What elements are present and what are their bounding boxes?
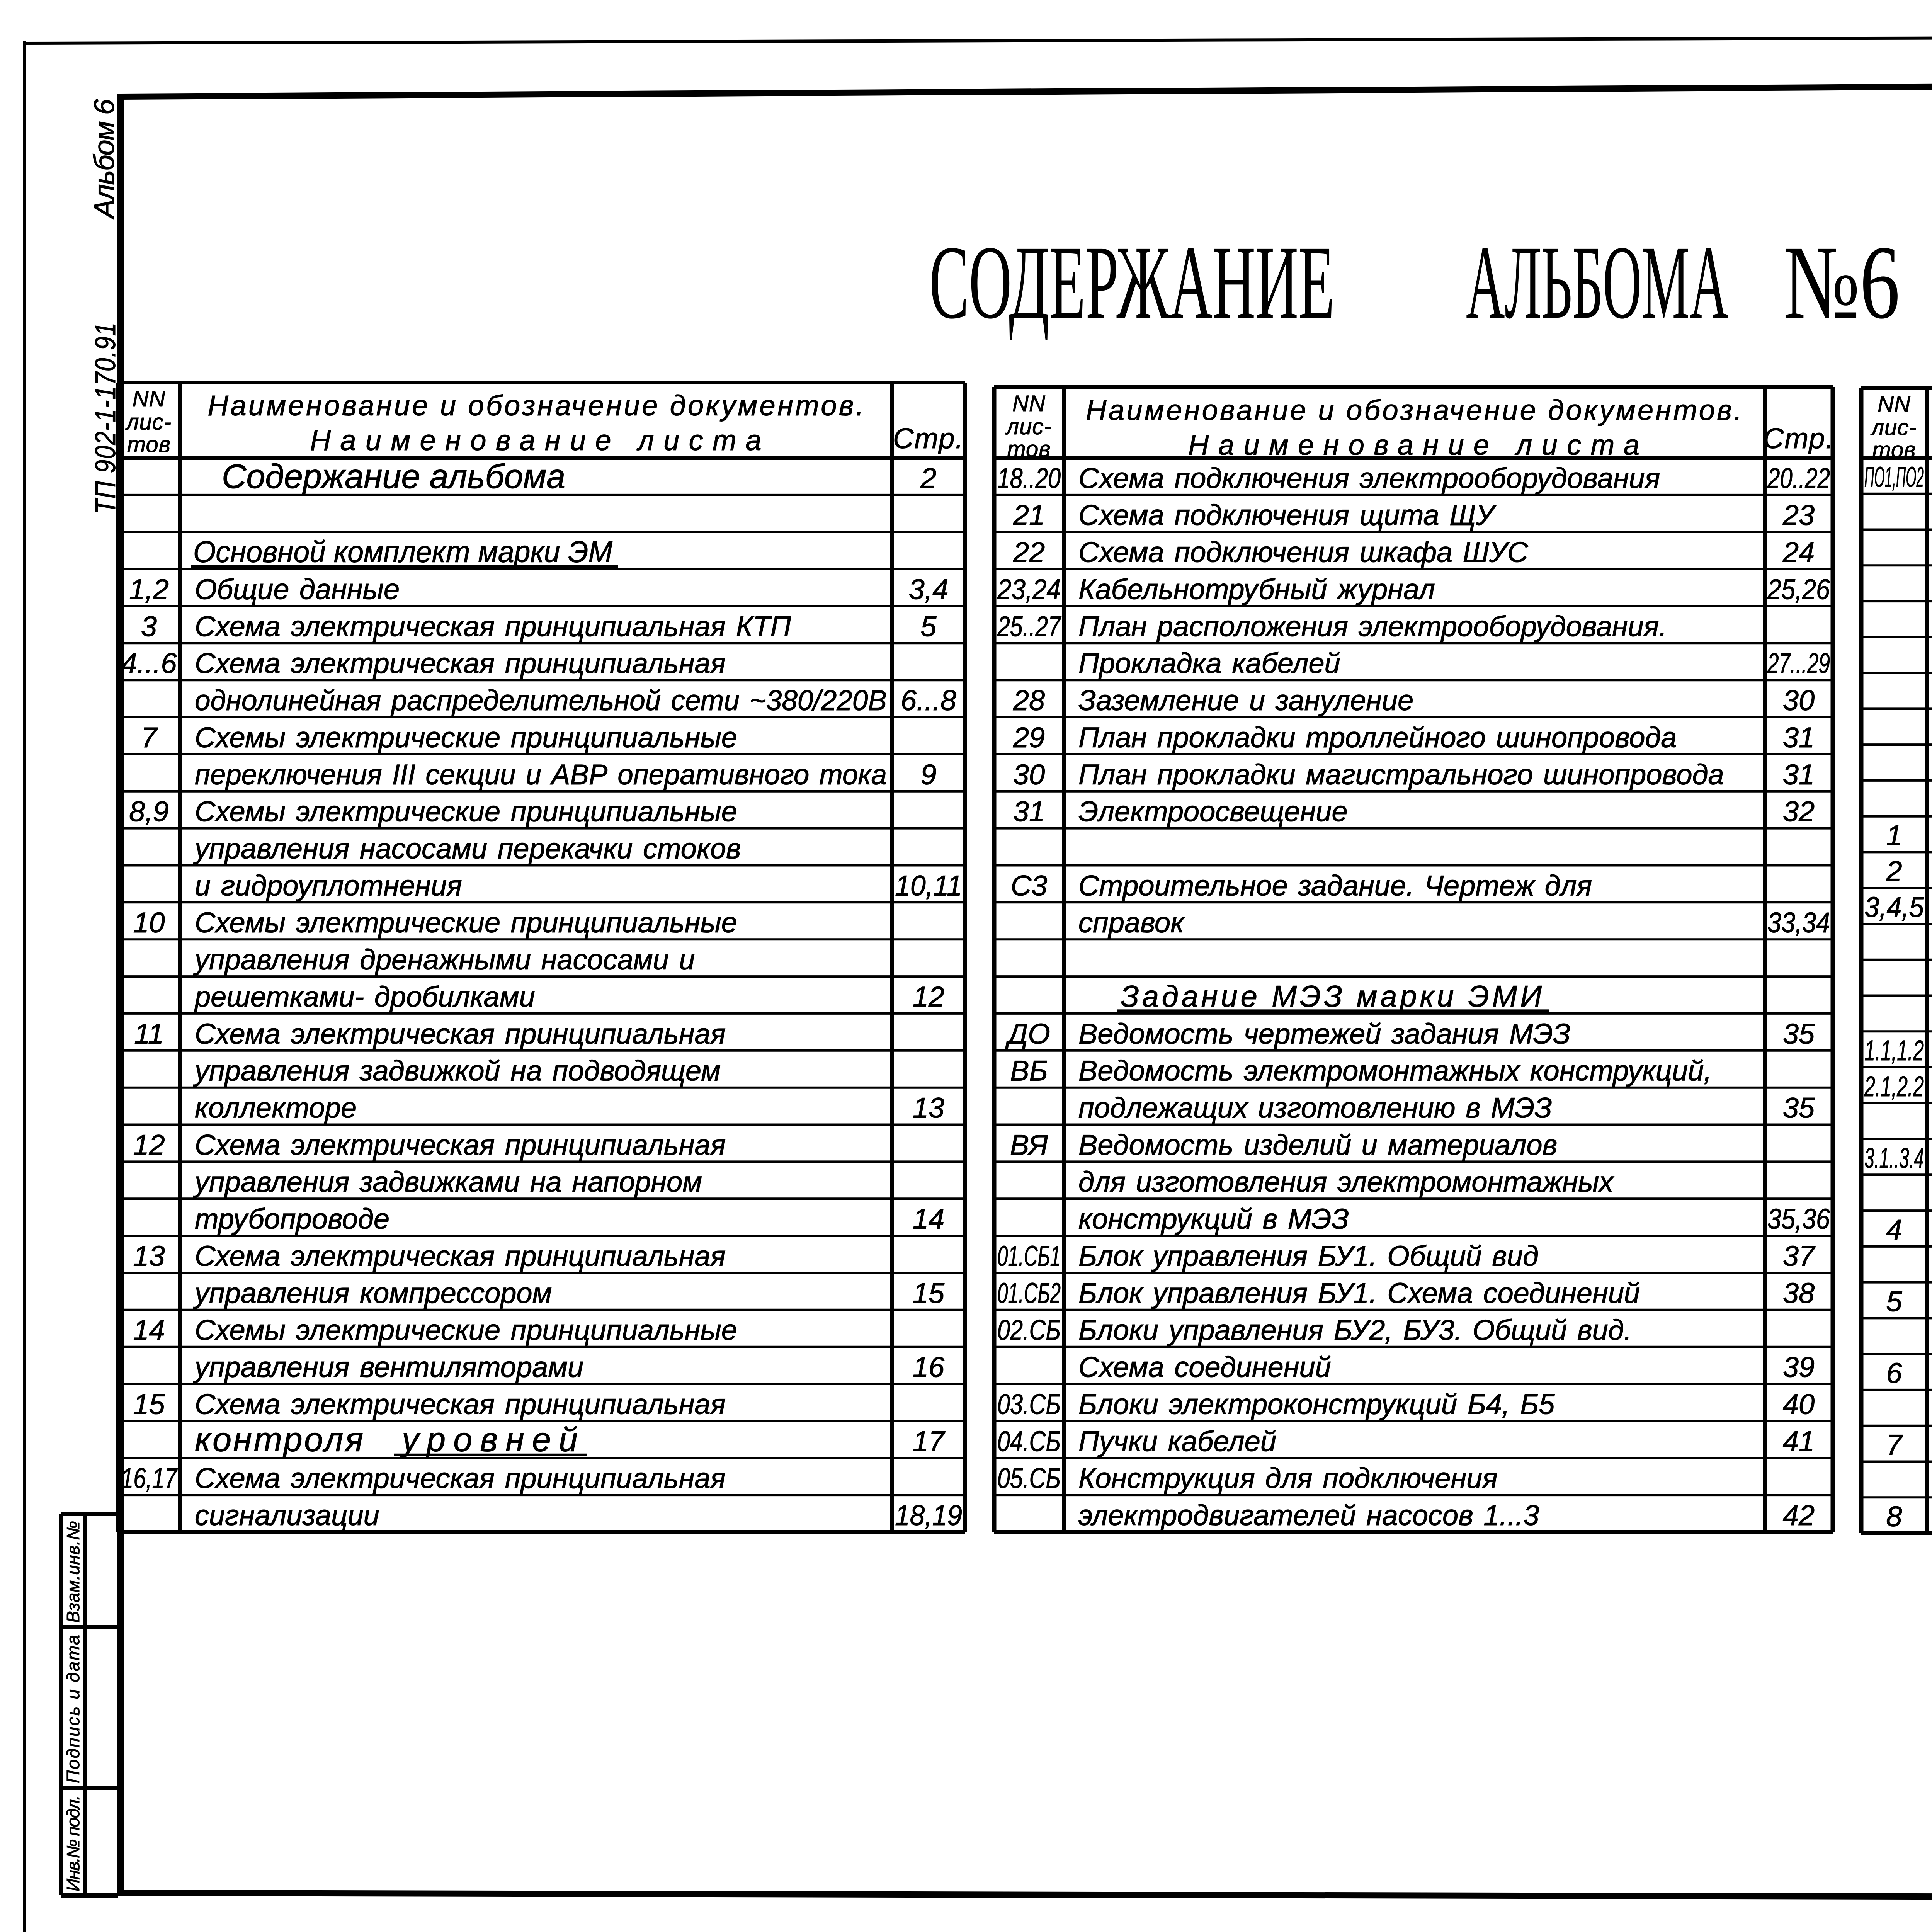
svg-text:Конструкция для подключения: Конструкция для подключения	[1078, 1462, 1498, 1494]
svg-text:Схема электрическая принципи: Схема электрическая принципиальная КТП	[195, 610, 791, 642]
svg-text:Схема электрическая принципи: Схема электрическая принципиальная	[195, 1018, 726, 1050]
svg-text:28: 28	[1013, 684, 1045, 716]
svg-text:Схема электрическая принципи: Схема электрическая принципиальная	[195, 1129, 726, 1161]
svg-text:3: 3	[141, 610, 157, 642]
svg-text:Взам.инв.№: Взам.инв.№	[63, 1520, 83, 1623]
svg-text:17: 17	[913, 1425, 946, 1457]
svg-text:тов: тов	[1872, 437, 1916, 463]
svg-text:Блоки электроконструкций Б4,: Блоки электроконструкций Б4, Б5	[1078, 1388, 1555, 1420]
svg-text:лис-: лис-	[1870, 415, 1917, 440]
svg-text:управления задвижками на на: управления задвижками на напорном	[193, 1166, 702, 1198]
svg-text:ВБ: ВБ	[1010, 1055, 1048, 1087]
svg-text:30: 30	[1013, 759, 1045, 791]
svg-text:25..27: 25..27	[997, 610, 1061, 642]
svg-text:8: 8	[1886, 1500, 1902, 1532]
svg-text:Инв.№ подл.: Инв.№ подл.	[63, 1795, 83, 1891]
svg-text:15: 15	[913, 1277, 945, 1309]
svg-text:21: 21	[1013, 499, 1045, 531]
svg-text:18,19: 18,19	[895, 1499, 962, 1531]
svg-text:ПО1,ПО2: ПО1,ПО2	[1864, 461, 1924, 493]
svg-text:30: 30	[1783, 684, 1815, 716]
svg-text:электродвигателей насосов 1: электродвигателей насосов 1...3	[1078, 1499, 1539, 1531]
svg-text:Схемы электрические принципи: Схемы электрические принципиальные	[195, 796, 737, 828]
svg-text:С3: С3	[1011, 869, 1048, 901]
svg-text:05.СБ: 05.СБ	[997, 1462, 1061, 1494]
svg-text:Ведомость изделий и матер: Ведомость изделий и материалов	[1078, 1129, 1557, 1161]
svg-text:Схемы электрические принципиа: Схемы электрические принципиальные	[195, 1314, 737, 1346]
svg-text:План прокладки магистральног: План прокладки магистрального шинопровод…	[1078, 759, 1724, 791]
svg-text:8,9: 8,9	[129, 796, 169, 828]
svg-text:управления задвижкой на под: управления задвижкой на подводящем	[193, 1055, 721, 1087]
svg-text:NN: NN	[1012, 391, 1046, 416]
svg-text:тов: тов	[1007, 437, 1051, 462]
svg-text:10,11: 10,11	[895, 869, 962, 901]
svg-text:Ведомость электромонтажных к: Ведомость электромонтажных конструкций,	[1078, 1055, 1712, 1087]
svg-text:35: 35	[1783, 1018, 1815, 1050]
svg-text:трубопроводе: трубопроводе	[195, 1203, 389, 1235]
svg-text:35,36: 35,36	[1767, 1203, 1830, 1235]
svg-text:03.СБ: 03.СБ	[997, 1388, 1061, 1420]
svg-text:39: 39	[1783, 1351, 1815, 1383]
svg-text:Строительное задание. Чертеж: Строительное задание. Чертеж для	[1078, 869, 1592, 901]
svg-text:Содержание альбома: Содержание альбома	[222, 457, 565, 495]
svg-text:2: 2	[920, 462, 936, 494]
svg-text:3,4: 3,4	[909, 573, 949, 605]
svg-text:справок: справок	[1078, 906, 1185, 939]
svg-text:для изготовления электромо: для изготовления электромонтажных	[1078, 1166, 1614, 1198]
svg-text:3.1..3.4: 3.1..3.4	[1864, 1142, 1924, 1174]
svg-text:Подпись и дата: Подпись и дата	[63, 1634, 83, 1783]
svg-text:управления компрессором: управления компрессором	[193, 1277, 552, 1309]
svg-text:32: 32	[1783, 796, 1815, 828]
svg-text:Основной комплект марки ЭМ: Основной комплект марки ЭМ	[193, 535, 612, 569]
svg-text:ВЯ: ВЯ	[1010, 1129, 1048, 1161]
svg-text:13: 13	[133, 1240, 165, 1272]
svg-text:Задание МЭЗ марки ЭМИ: Задание МЭЗ марки ЭМИ	[1121, 979, 1542, 1013]
svg-text:NN: NN	[1878, 392, 1911, 417]
svg-text:1,2: 1,2	[129, 573, 169, 605]
svg-text:13: 13	[913, 1092, 944, 1124]
svg-text:подлежащих изготовлению в: подлежащих изготовлению в МЭЗ	[1078, 1092, 1552, 1124]
svg-text:1.1,1.2: 1.1,1.2	[1864, 1034, 1924, 1066]
svg-text:Схемы электрические принципи: Схемы электрические принципиальные	[195, 721, 737, 753]
svg-text:4: 4	[1886, 1214, 1902, 1246]
svg-text:решетками- дробилками: решетками- дробилками	[194, 981, 535, 1013]
svg-text:NN: NN	[133, 386, 166, 412]
svg-text:переключения III секции и АВР: переключения III секции и АВР оперативно…	[195, 759, 887, 791]
svg-text:Схема подключения щита ЩУ: Схема подключения щита ЩУ	[1078, 499, 1497, 531]
svg-text:лис-: лис-	[1005, 414, 1051, 439]
svg-text:16: 16	[913, 1351, 945, 1383]
svg-text:ДО: ДО	[1005, 1018, 1050, 1050]
svg-text:Электроосвещение: Электроосвещение	[1078, 796, 1348, 828]
svg-text:4...6: 4...6	[121, 647, 177, 679]
svg-text:40: 40	[1783, 1388, 1815, 1420]
svg-text:5: 5	[920, 610, 937, 642]
svg-text:Стр.: Стр.	[1763, 422, 1834, 454]
svg-text:12: 12	[913, 981, 944, 1013]
svg-text:Альбом 6: Альбом 6	[88, 98, 120, 220]
svg-text:Схема электрическая принципи: Схема электрическая принципиальная	[195, 1462, 726, 1494]
svg-text:01.СБ2: 01.СБ2	[997, 1277, 1061, 1309]
svg-text:План расположения электрообо: План расположения электрооборудования.	[1078, 610, 1667, 642]
svg-text:31: 31	[1013, 796, 1045, 828]
svg-text:23,24: 23,24	[997, 573, 1061, 605]
svg-text:Прокладка кабелей: Прокладка кабелей	[1078, 647, 1340, 679]
svg-text:23: 23	[1782, 499, 1815, 531]
svg-text:6...8: 6...8	[901, 684, 956, 716]
svg-text:управления вентиляторами: управления вентиляторами	[193, 1351, 583, 1383]
svg-text:управления дренажными насосам: управления дренажными насосами и	[193, 944, 695, 976]
svg-text:10: 10	[133, 906, 165, 939]
svg-text:коллекторе: коллекторе	[195, 1092, 357, 1124]
svg-text:14: 14	[133, 1314, 165, 1346]
svg-text:7: 7	[141, 721, 158, 753]
svg-text:№6: №6	[1783, 224, 1900, 340]
svg-text:35: 35	[1783, 1092, 1815, 1124]
svg-text:Стр.: Стр.	[893, 422, 964, 454]
svg-text:1: 1	[1886, 819, 1902, 851]
svg-text:22: 22	[1013, 536, 1045, 568]
svg-text:Заземление и зануление: Заземление и зануление	[1078, 684, 1413, 716]
svg-text:9: 9	[920, 759, 936, 791]
svg-text:37: 37	[1783, 1240, 1816, 1272]
svg-text:14: 14	[913, 1203, 944, 1235]
svg-text:02.СБ: 02.СБ	[997, 1314, 1061, 1346]
svg-text:38: 38	[1783, 1277, 1815, 1309]
svg-text:Схема подключения шкафа: Схема подключения шкафа ШУС	[1078, 536, 1528, 568]
svg-text:тов: тов	[127, 432, 171, 457]
svg-text:11: 11	[134, 1018, 164, 1050]
svg-text:6: 6	[1886, 1357, 1902, 1389]
svg-text:27...29: 27...29	[1767, 647, 1830, 679]
svg-text:04.СБ: 04.СБ	[997, 1425, 1061, 1457]
svg-text:01.СБ1: 01.СБ1	[997, 1240, 1061, 1272]
svg-text:и гидроуплотнения: и гидроуплотнения	[195, 869, 462, 901]
svg-text:Ведомость чертежей задания: Ведомость чертежей задания МЭЗ	[1078, 1018, 1570, 1050]
svg-text:15: 15	[133, 1388, 165, 1420]
svg-text:СОДЕРЖАНИЕ: СОДЕРЖАНИЕ	[929, 224, 1335, 341]
svg-text:Блок управления БУ1. Общий: Блок управления БУ1. Общий вид	[1078, 1240, 1539, 1272]
svg-text:31: 31	[1783, 721, 1815, 753]
svg-text:Схема электрическая принципи: Схема электрическая принципиальная	[195, 1240, 726, 1272]
svg-text:24: 24	[1782, 536, 1815, 568]
svg-text:лис-: лис-	[125, 410, 172, 435]
svg-text:18..20: 18..20	[997, 462, 1061, 494]
svg-text:12: 12	[133, 1129, 165, 1161]
svg-text:Пучки кабелей: Пучки кабелей	[1078, 1425, 1276, 1457]
svg-text:2: 2	[1886, 855, 1902, 887]
svg-text:сигнализации: сигнализации	[195, 1499, 379, 1531]
svg-text:33,34: 33,34	[1767, 906, 1830, 939]
svg-text:Общие данные: Общие данные	[195, 573, 400, 605]
svg-text:2.1,2.2: 2.1,2.2	[1864, 1070, 1924, 1102]
svg-text:контроля: контроля	[195, 1420, 363, 1458]
svg-text:Кабельнотрубный журнал: Кабельнотрубный журнал	[1078, 573, 1435, 605]
svg-text:однолинейная распределительно: однолинейная распределительной сети ~380…	[195, 684, 887, 716]
svg-text:7: 7	[1886, 1429, 1903, 1461]
svg-text:Блок управления БУ1. Схема: Блок управления БУ1. Схема соединений	[1078, 1277, 1640, 1309]
svg-text:План прокладки троллейного: План прокладки троллейного шинопровода	[1078, 721, 1677, 753]
svg-text:16,17: 16,17	[121, 1462, 178, 1494]
svg-text:25,26: 25,26	[1767, 573, 1830, 605]
svg-text:Схемы электрические принципи: Схемы электрические принципиальные	[195, 906, 737, 939]
svg-text:29: 29	[1013, 721, 1045, 753]
svg-text:Блоки управления БУ2, БУ3. О: Блоки управления БУ2, БУ3. Общий вид.	[1078, 1314, 1632, 1346]
svg-text:5: 5	[1886, 1285, 1902, 1317]
svg-text:Схема соединений: Схема соединений	[1078, 1351, 1331, 1383]
svg-text:3,4,5: 3,4,5	[1864, 891, 1924, 923]
svg-text:АЛЬБОМА: АЛЬБОМА	[1466, 224, 1728, 340]
svg-text:конструкций в МЭЗ: конструкций в МЭЗ	[1078, 1203, 1349, 1235]
svg-text:41: 41	[1783, 1425, 1815, 1457]
svg-text:Схема подключения электрообо: Схема подключения электрооборудования	[1078, 462, 1660, 494]
svg-text:42: 42	[1783, 1499, 1815, 1531]
svg-text:20..22: 20..22	[1767, 462, 1830, 494]
svg-text:Схема электрическая принципи: Схема электрическая принципиальная	[195, 1388, 726, 1420]
svg-text:управления насосами перекач: управления насосами перекачки стоков	[193, 833, 741, 865]
svg-text:Схема электрическая принципи: Схема электрическая принципиальная	[195, 647, 726, 679]
svg-text:31: 31	[1783, 759, 1815, 791]
